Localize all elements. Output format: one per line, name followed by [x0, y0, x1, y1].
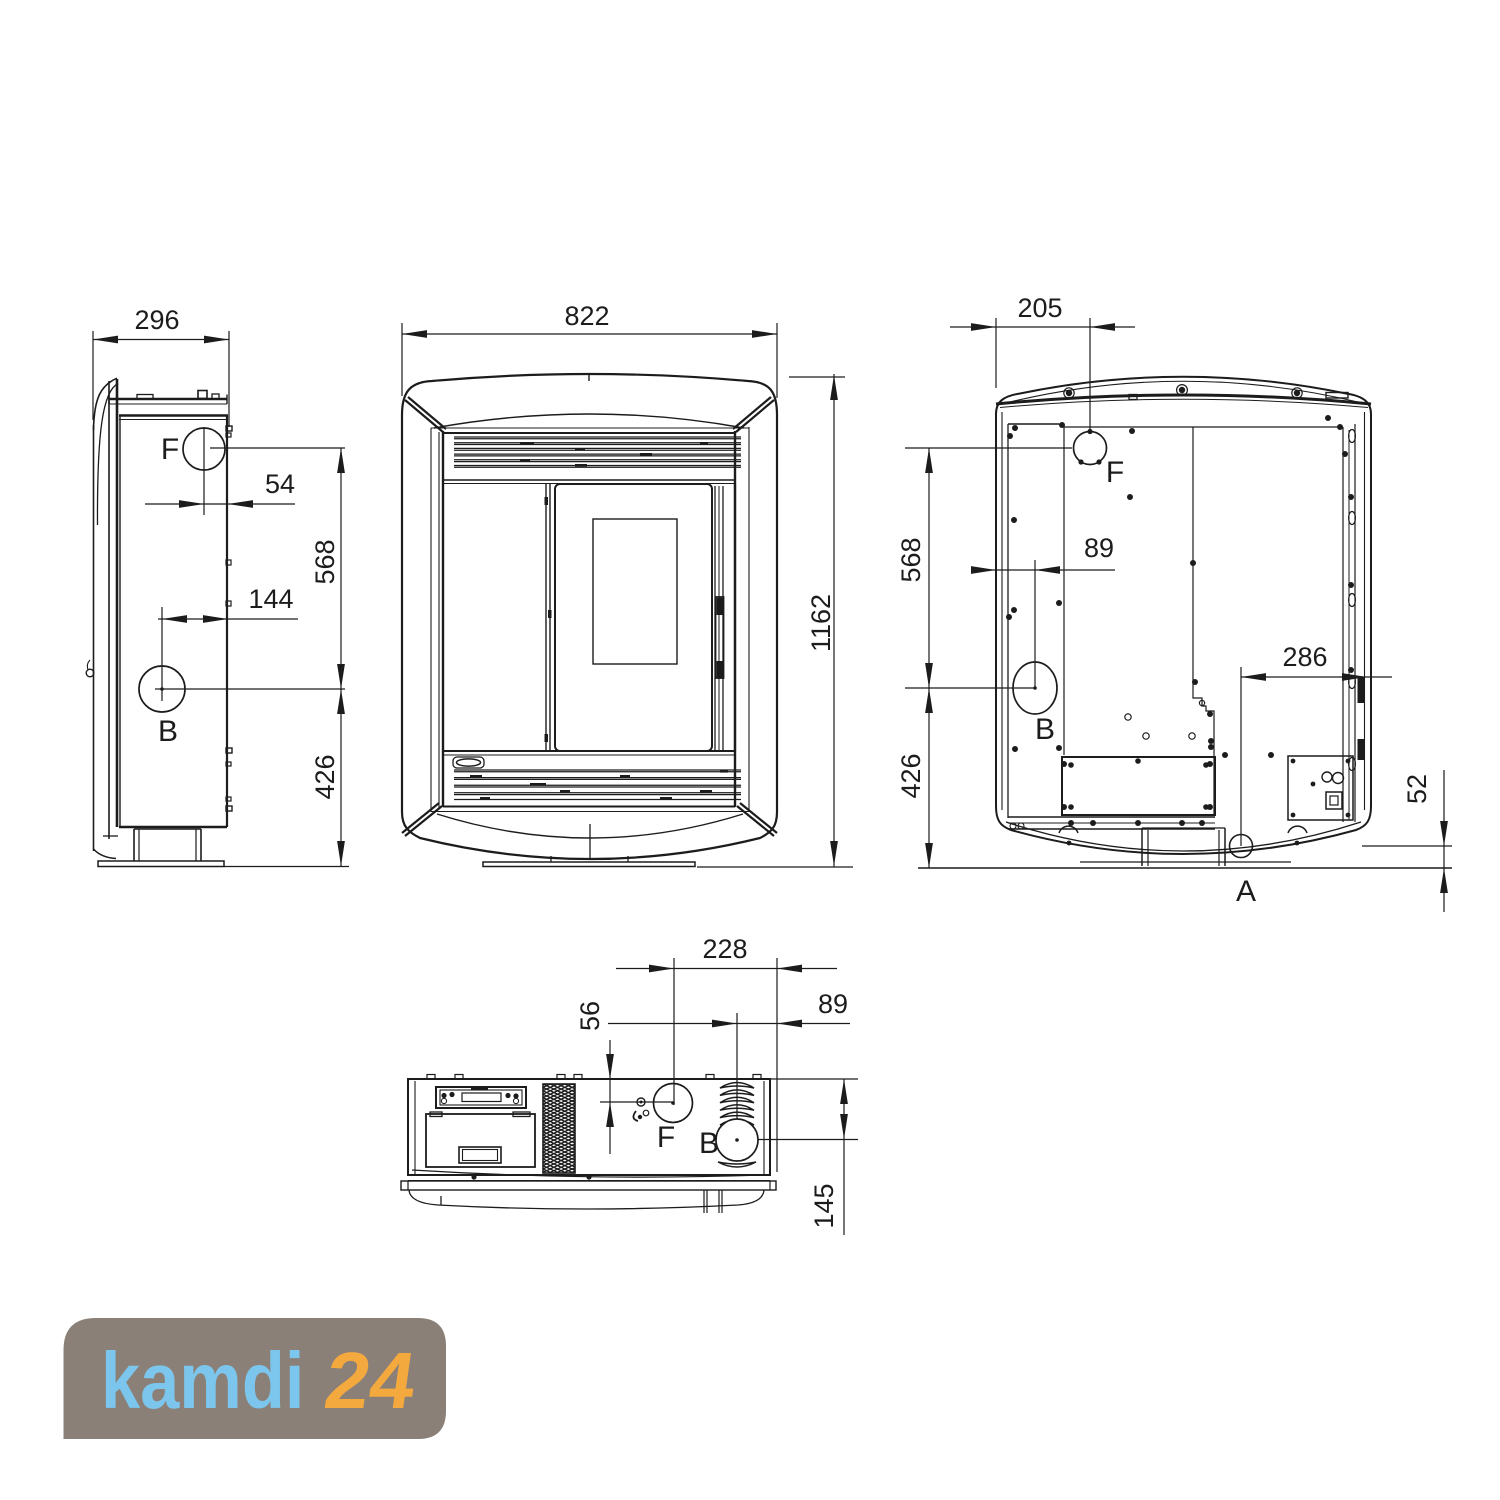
- svg-text:1162: 1162: [806, 594, 836, 652]
- svg-text:B: B: [1035, 713, 1055, 746]
- svg-text:56: 56: [575, 1001, 605, 1031]
- svg-text:89: 89: [818, 989, 848, 1019]
- svg-text:B: B: [158, 715, 178, 748]
- svg-text:205: 205: [1017, 293, 1062, 323]
- svg-text:24: 24: [319, 1336, 421, 1426]
- svg-text:54: 54: [265, 469, 295, 499]
- svg-text:568: 568: [896, 537, 926, 582]
- svg-text:kamdi: kamdi: [101, 1336, 304, 1425]
- svg-text:426: 426: [310, 754, 340, 799]
- svg-text:F: F: [657, 1121, 675, 1154]
- svg-text:822: 822: [564, 301, 609, 331]
- svg-text:144: 144: [248, 584, 293, 614]
- svg-text:B: B: [699, 1127, 719, 1160]
- svg-text:296: 296: [134, 305, 179, 335]
- svg-text:52: 52: [1402, 774, 1432, 804]
- svg-text:568: 568: [310, 539, 340, 584]
- svg-text:426: 426: [896, 753, 926, 798]
- svg-text:89: 89: [1084, 533, 1114, 563]
- svg-text:F: F: [1106, 456, 1124, 489]
- svg-text:A: A: [1236, 875, 1256, 908]
- svg-text:145: 145: [809, 1183, 839, 1228]
- svg-text:F: F: [161, 433, 179, 466]
- svg-text:228: 228: [702, 934, 747, 964]
- svg-text:286: 286: [1282, 642, 1327, 672]
